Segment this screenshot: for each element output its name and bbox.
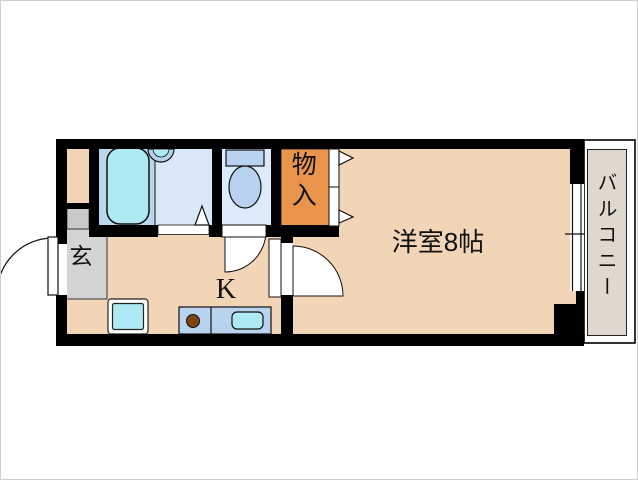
toilet-door-leaf [222,225,266,237]
floorplan-image: 玄 K 洋室8帖 物入 バルコニー [0,0,638,480]
toilet-bowl-icon [229,166,261,208]
entry-door [1,237,67,295]
kitchen-sink-icon [232,312,263,329]
entry-door-swing-arc [1,238,53,294]
kitchen-label: K [208,275,244,304]
washing-machine-pan-inner [113,304,144,330]
closet-label: 物入 [289,151,315,213]
toilet-tank-icon [226,150,264,166]
stove-burner-icon [187,315,200,328]
main-room-door-leaf [269,239,281,297]
main-room-door-opening [281,243,293,295]
balcony-label: バルコニー [594,172,615,302]
bathroom-door-threshold [158,225,209,235]
bathroom [99,148,212,225]
entry-door-leaf [48,237,58,295]
floorplan-drawing [1,1,638,480]
entrance-label: 玄 [63,244,99,268]
toilet-room [222,149,271,225]
shoe-cabinet [67,208,89,229]
western-room-label: 洋室8帖 [382,229,494,256]
bathtub-icon [107,148,149,224]
